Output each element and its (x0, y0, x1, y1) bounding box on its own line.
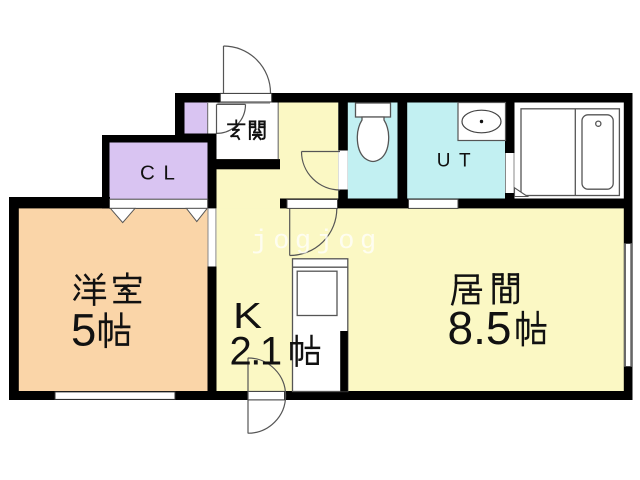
svg-text:T: T (459, 150, 471, 171)
svg-text:U: U (437, 150, 451, 171)
svg-text:8.5: 8.5 (448, 302, 512, 354)
svg-text:C: C (140, 162, 155, 185)
svg-text:2.1: 2.1 (230, 330, 281, 374)
svg-text:jogjog: jogjog (252, 227, 382, 257)
svg-text:5: 5 (71, 305, 96, 356)
svg-text:L: L (164, 162, 175, 185)
